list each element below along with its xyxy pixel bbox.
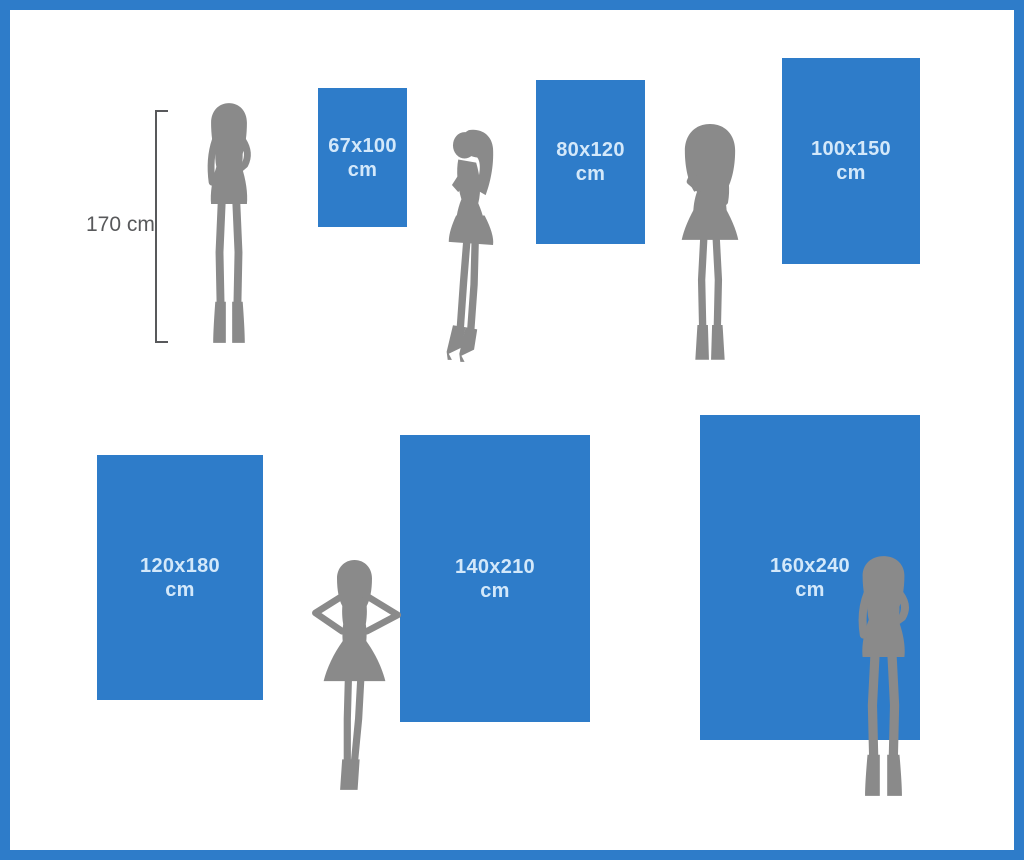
- height-measure-bracket: [155, 110, 168, 343]
- height-label: 170 cm: [86, 213, 155, 237]
- size-unit: cm: [480, 579, 510, 603]
- woman-silhouette-2: [434, 126, 512, 370]
- size-value: 120x180: [140, 554, 220, 578]
- size-rect-67x100: 67x100 cm: [318, 88, 407, 227]
- size-rect-120x180: 120x180 cm: [97, 455, 263, 700]
- size-value: 100x150: [811, 137, 891, 161]
- size-unit: cm: [795, 578, 825, 602]
- woman-silhouette-1: [190, 100, 268, 347]
- woman-silhouette-5: [838, 553, 929, 800]
- size-unit: cm: [836, 161, 866, 185]
- size-value: 67x100: [328, 134, 397, 158]
- size-unit: cm: [165, 578, 195, 602]
- size-rect-80x120: 80x120 cm: [536, 80, 645, 244]
- woman-silhouette-3: [666, 122, 754, 368]
- size-value: 80x120: [556, 138, 625, 162]
- size-rect-140x210: 140x210 cm: [400, 435, 590, 722]
- woman-silhouette-4: [301, 558, 408, 794]
- size-rect-100x150: 100x150 cm: [782, 58, 920, 264]
- size-value: 140x210: [455, 555, 535, 579]
- size-unit: cm: [348, 158, 378, 182]
- size-unit: cm: [576, 162, 606, 186]
- size-comparison-diagram: 67x100 cm 80x120 cm 100x150 cm 120x180 c…: [0, 0, 1024, 860]
